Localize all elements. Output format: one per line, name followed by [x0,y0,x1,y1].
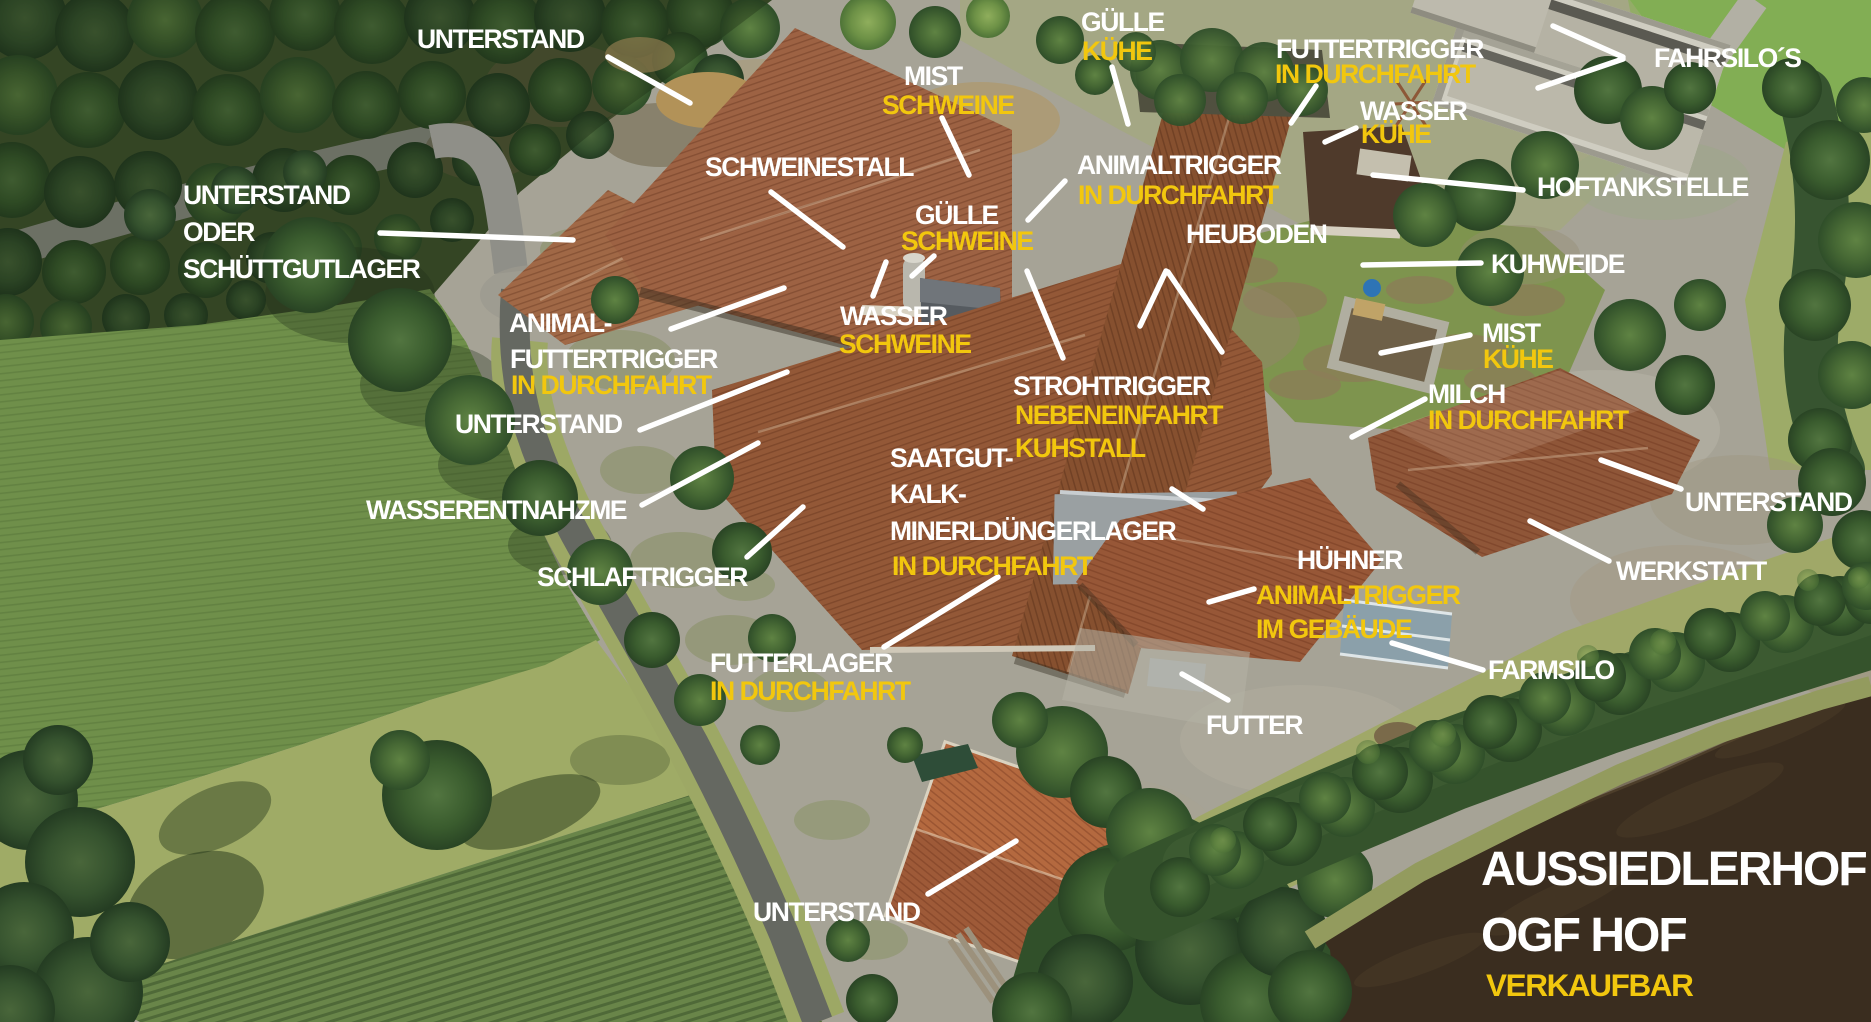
svg-text:KALK-: KALK- [890,479,966,509]
svg-text:UNTERSTAND: UNTERSTAND [753,897,921,927]
svg-text:HEUBODEN: HEUBODEN [1186,219,1327,249]
svg-text:HOFTANKSTELLE: HOFTANKSTELLE [1537,172,1749,202]
svg-text:SCHWEINE: SCHWEINE [882,90,1014,120]
svg-text:ANIMALTRIGGER: ANIMALTRIGGER [1077,150,1282,180]
svg-text:UNTERSTAND: UNTERSTAND [455,409,623,439]
svg-text:NEBENEINFAHRT: NEBENEINFAHRT [1015,400,1223,430]
svg-text:SAATGUT-: SAATGUT- [890,443,1013,473]
svg-text:FUTTER: FUTTER [1206,710,1303,740]
svg-text:IN DURCHFAHRT: IN DURCHFAHRT [1078,180,1279,210]
svg-text:WASSERENTNAHZME: WASSERENTNAHZME [366,495,627,525]
svg-text:ANIMAL-: ANIMAL- [509,308,612,338]
svg-text:SCHWEINESTALL: SCHWEINESTALL [705,152,914,182]
svg-text:HÜHNER: HÜHNER [1297,545,1403,575]
svg-text:KÜHE: KÜHE [1361,119,1431,149]
svg-text:KÜHE: KÜHE [1483,344,1553,374]
svg-text:FAHRSILO´S: FAHRSILO´S [1654,43,1801,73]
svg-text:OGF HOF: OGF HOF [1481,909,1686,962]
svg-text:SCHÜTTGUTLAGER: SCHÜTTGUTLAGER [183,254,421,284]
svg-text:GÜLLE: GÜLLE [1081,7,1165,37]
svg-text:UNTERSTAND: UNTERSTAND [1685,487,1853,517]
svg-text:SCHLAFTRIGGER: SCHLAFTRIGGER [537,562,748,592]
svg-text:WASSER: WASSER [840,301,948,331]
svg-text:ANIMALTRIGGER: ANIMALTRIGGER [1256,580,1461,610]
svg-text:IN DURCHFAHRT: IN DURCHFAHRT [511,370,712,400]
svg-text:AUSSIEDLERHOF: AUSSIEDLERHOF [1481,843,1866,896]
svg-text:KUHWEIDE: KUHWEIDE [1491,249,1625,279]
svg-text:IN DURCHFAHRT: IN DURCHFAHRT [710,676,911,706]
svg-text:STROHTRIGGER: STROHTRIGGER [1013,371,1211,401]
svg-text:MIST: MIST [904,61,963,91]
svg-text:FUTTERLAGER: FUTTERLAGER [710,648,893,678]
svg-text:KUHSTALL: KUHSTALL [1015,433,1146,463]
svg-text:UNTERSTAND: UNTERSTAND [183,180,351,210]
svg-text:MINERLDÜNGERLAGER: MINERLDÜNGERLAGER [890,516,1177,546]
svg-text:IN DURCHFAHRT: IN DURCHFAHRT [1275,59,1476,89]
svg-text:IN DURCHFAHRT: IN DURCHFAHRT [892,551,1093,581]
svg-text:IM GEBÄUDE: IM GEBÄUDE [1256,614,1412,644]
svg-text:UNTERSTAND: UNTERSTAND [417,24,585,54]
svg-text:KÜHE: KÜHE [1082,36,1152,66]
svg-text:WERKSTATT: WERKSTATT [1616,556,1767,586]
svg-text:SCHWEINE: SCHWEINE [839,329,971,359]
svg-text:VERKAUFBAR: VERKAUFBAR [1486,967,1694,1003]
svg-text:FARMSILO: FARMSILO [1488,655,1614,685]
svg-text:IN DURCHFAHRT: IN DURCHFAHRT [1428,405,1629,435]
svg-text:ODER: ODER [183,217,255,247]
svg-text:SCHWEINE: SCHWEINE [901,226,1033,256]
